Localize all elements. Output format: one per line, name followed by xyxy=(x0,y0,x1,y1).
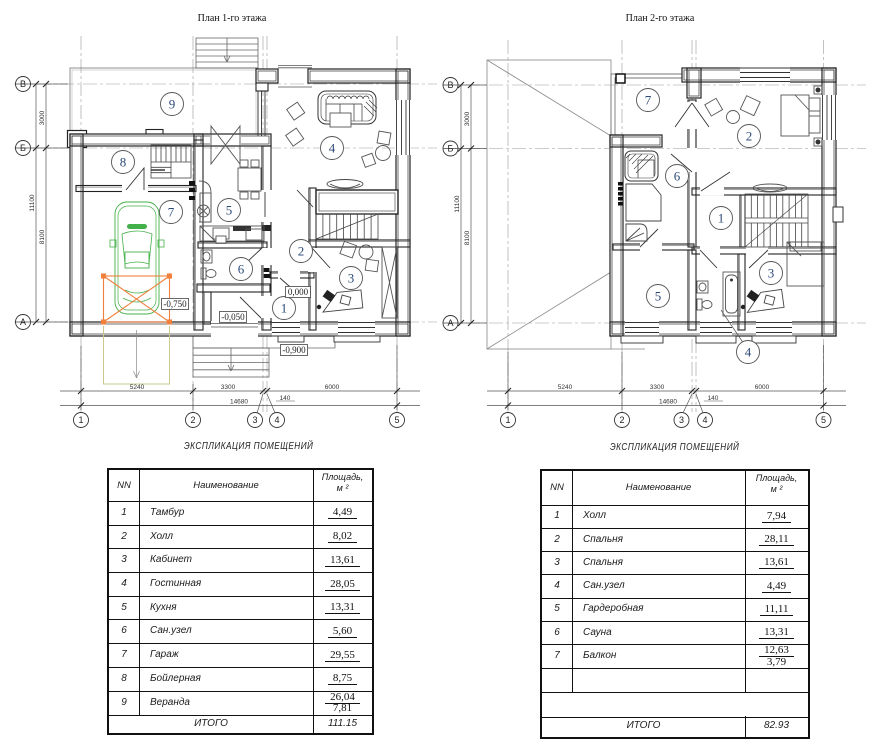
svg-text:5: 5 xyxy=(821,415,826,425)
svg-text:11100: 11100 xyxy=(29,194,36,211)
svg-text:6000: 6000 xyxy=(325,384,340,391)
svg-text:2: 2 xyxy=(619,415,624,425)
svg-text:5240: 5240 xyxy=(558,384,573,391)
svg-text:3000: 3000 xyxy=(464,111,471,126)
svg-text:3: 3 xyxy=(348,271,355,286)
svg-text:5240: 5240 xyxy=(130,384,145,391)
svg-text:5: 5 xyxy=(655,289,662,304)
svg-text:8: 8 xyxy=(120,155,127,170)
svg-text:6: 6 xyxy=(674,169,681,184)
svg-text:7: 7 xyxy=(168,205,175,220)
svg-text:А: А xyxy=(447,318,453,328)
svg-text:14680: 14680 xyxy=(230,399,248,406)
svg-text:-0,050: -0,050 xyxy=(221,312,245,322)
svg-text:5: 5 xyxy=(394,415,399,425)
svg-text:9: 9 xyxy=(169,97,176,112)
svg-text:3300: 3300 xyxy=(221,384,236,391)
svg-text:4: 4 xyxy=(274,415,279,425)
svg-text:4: 4 xyxy=(745,345,752,360)
svg-text:14680: 14680 xyxy=(659,399,677,406)
svg-text:План 1-го этажа: План 1-го этажа xyxy=(198,13,267,24)
svg-text:1: 1 xyxy=(78,415,83,425)
svg-text:В: В xyxy=(20,79,26,89)
svg-text:3300: 3300 xyxy=(650,384,665,391)
svg-text:В: В xyxy=(447,80,453,90)
svg-text:6000: 6000 xyxy=(755,384,770,391)
svg-text:2: 2 xyxy=(190,415,195,425)
svg-text:Б: Б xyxy=(448,144,454,154)
svg-text:3: 3 xyxy=(768,266,775,281)
svg-text:-0,900: -0,900 xyxy=(282,345,306,355)
svg-text:8100: 8100 xyxy=(39,229,46,244)
svg-text:А: А xyxy=(20,317,26,327)
svg-text:11100: 11100 xyxy=(454,195,461,212)
svg-text:4: 4 xyxy=(329,141,336,156)
svg-text:2: 2 xyxy=(298,244,305,259)
svg-text:3000: 3000 xyxy=(39,110,46,125)
svg-text:1: 1 xyxy=(505,415,510,425)
svg-text:3: 3 xyxy=(679,415,684,425)
svg-text:0,000: 0,000 xyxy=(288,287,309,297)
svg-text:Б: Б xyxy=(20,143,26,153)
svg-text:5: 5 xyxy=(226,203,233,218)
svg-text:4: 4 xyxy=(702,415,707,425)
svg-text:6: 6 xyxy=(238,262,245,277)
svg-text:8100: 8100 xyxy=(464,230,471,245)
svg-text:1: 1 xyxy=(718,211,725,226)
svg-text:7: 7 xyxy=(645,93,652,108)
svg-text:-0,750: -0,750 xyxy=(163,299,187,309)
svg-text:3: 3 xyxy=(252,415,257,425)
svg-text:1: 1 xyxy=(281,301,288,316)
svg-text:2: 2 xyxy=(746,129,753,144)
svg-text:План 2-го этажа: План 2-го этажа xyxy=(626,13,695,24)
